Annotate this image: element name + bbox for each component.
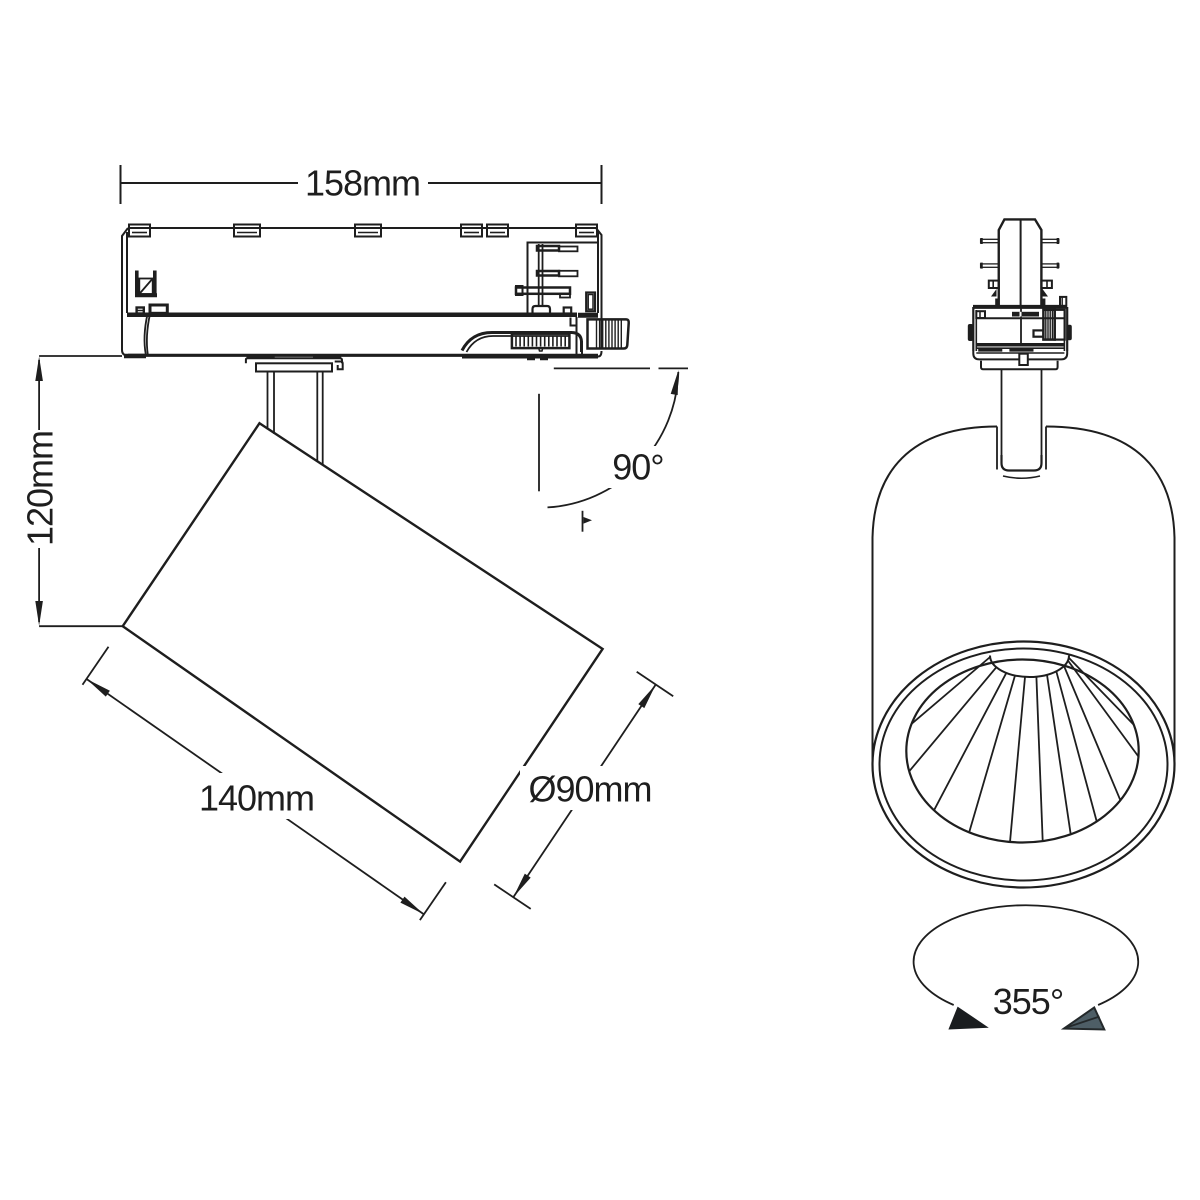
svg-text:158mm: 158mm [305, 163, 420, 204]
svg-text:90°: 90° [612, 447, 663, 488]
svg-text:140mm: 140mm [199, 778, 314, 819]
svg-text:355°: 355° [993, 981, 1063, 1022]
svg-text:120mm: 120mm [20, 431, 61, 546]
svg-text:Ø90mm: Ø90mm [528, 769, 651, 810]
